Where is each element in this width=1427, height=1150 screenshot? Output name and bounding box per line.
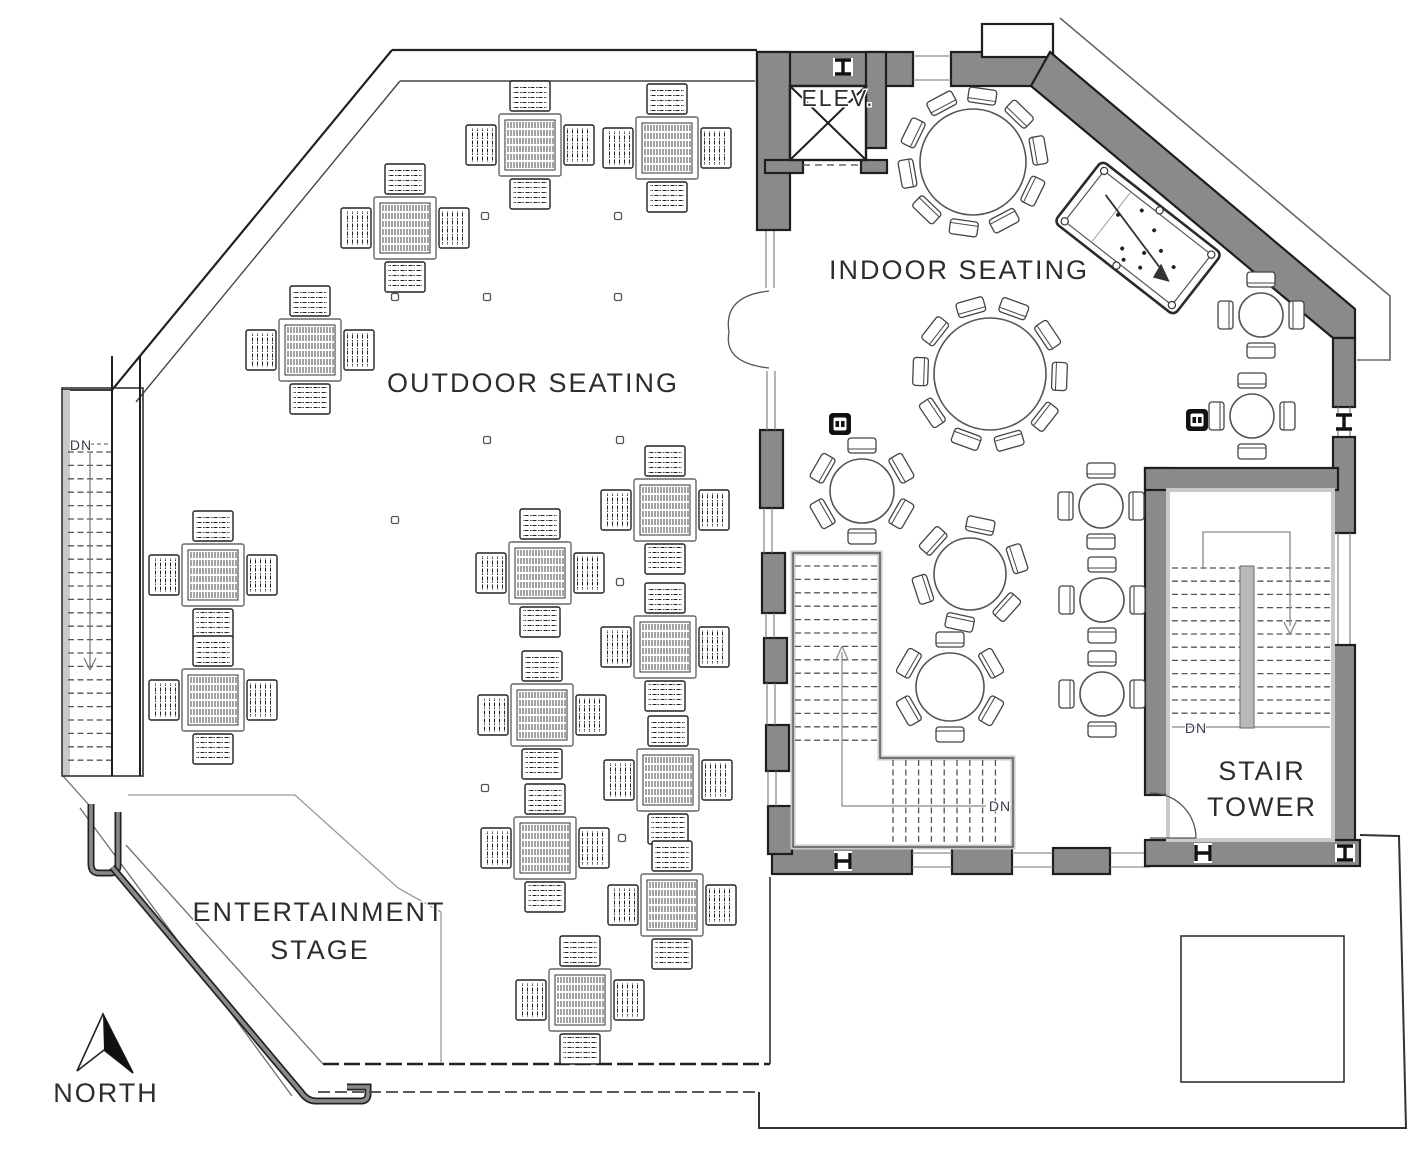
deck-dot bbox=[392, 294, 399, 301]
chair-icon bbox=[1059, 680, 1074, 708]
stair-tower-label-line2: TOWER bbox=[1207, 792, 1317, 822]
interior-stair-dn-label: DN bbox=[989, 798, 1011, 814]
left-stair: DN bbox=[62, 356, 143, 776]
chair-icon bbox=[965, 515, 996, 535]
chair-icon bbox=[1130, 680, 1145, 708]
outdoor-table bbox=[608, 841, 736, 969]
chair-icon bbox=[1051, 362, 1067, 391]
floor-plan-svg: DN ENTERTAINMENT STAGE bbox=[0, 0, 1427, 1150]
double-entry-door bbox=[728, 291, 769, 368]
round-table bbox=[898, 87, 1049, 237]
deck-dot bbox=[615, 294, 622, 301]
chair-icon bbox=[1088, 651, 1116, 666]
outdoor-table bbox=[516, 936, 644, 1064]
stair-tower: DN STAIR TOWER bbox=[1145, 468, 1360, 866]
outdoor-table bbox=[601, 583, 729, 711]
elevator-label: ELEV. bbox=[801, 85, 874, 111]
steel-column-icon bbox=[834, 851, 852, 871]
chair-icon bbox=[848, 438, 876, 453]
deck-dot bbox=[615, 213, 622, 220]
north-label: NORTH bbox=[53, 1078, 159, 1108]
outdoor-table bbox=[604, 716, 732, 844]
column-marker-icon bbox=[829, 413, 851, 435]
chair-icon bbox=[1247, 272, 1275, 287]
deck-dot bbox=[482, 213, 489, 220]
north-arrow: NORTH bbox=[53, 1014, 159, 1108]
chair-icon bbox=[848, 529, 876, 544]
chair-icon bbox=[1247, 343, 1275, 358]
deck-dot bbox=[617, 437, 624, 444]
round-table bbox=[1059, 557, 1145, 643]
entertainment-stage-label-line1: ENTERTAINMENT bbox=[192, 897, 445, 927]
deck-dot bbox=[482, 785, 489, 792]
entertainment-stage-label-line2: STAGE bbox=[270, 935, 370, 965]
chair-icon bbox=[1130, 586, 1145, 614]
steel-column-icon bbox=[1194, 843, 1212, 863]
outdoor-table bbox=[603, 84, 731, 212]
outdoor-table bbox=[476, 509, 604, 637]
chair-icon bbox=[1289, 301, 1304, 329]
chair-icon bbox=[1059, 586, 1074, 614]
chair-icon bbox=[898, 158, 918, 188]
chair-icon bbox=[1129, 492, 1144, 520]
round-table bbox=[1059, 651, 1145, 737]
stair-tower-dn-label: DN bbox=[1185, 720, 1207, 736]
indoor-seating-label: INDOOR SEATING bbox=[829, 255, 1089, 285]
deck-dots bbox=[392, 213, 626, 842]
chair-icon bbox=[1238, 373, 1266, 388]
round-table bbox=[895, 632, 1004, 742]
steel-column-icon bbox=[1334, 413, 1354, 431]
steel-column-icon bbox=[833, 58, 853, 76]
outdoor-table bbox=[481, 784, 609, 912]
chair-icon bbox=[1087, 463, 1115, 478]
chair-icon bbox=[994, 430, 1025, 452]
round-table bbox=[911, 515, 1028, 632]
chair-icon bbox=[1218, 301, 1233, 329]
chair-icon bbox=[955, 296, 986, 318]
deck-dot bbox=[392, 517, 399, 524]
chair-icon bbox=[1087, 534, 1115, 549]
outdoor-table bbox=[341, 164, 469, 292]
round-table bbox=[913, 296, 1068, 452]
outdoor-table bbox=[149, 511, 277, 639]
round-table bbox=[1058, 463, 1144, 549]
chair-icon bbox=[1238, 444, 1266, 459]
column-marker-icon bbox=[1186, 409, 1208, 431]
round-table bbox=[1209, 373, 1295, 459]
deck-dot bbox=[484, 437, 491, 444]
outdoor-seating-label: OUTDOOR SEATING bbox=[387, 368, 679, 398]
indoor-tables bbox=[809, 87, 1304, 742]
chair-icon bbox=[1029, 135, 1049, 165]
chair-icon bbox=[913, 357, 929, 386]
outdoor-table bbox=[246, 286, 374, 414]
chair-icon bbox=[949, 218, 979, 237]
chair-icon bbox=[1058, 492, 1073, 520]
chair-icon bbox=[936, 632, 964, 647]
outdoor-table bbox=[601, 446, 729, 574]
outdoor-table bbox=[478, 651, 606, 779]
round-table bbox=[809, 438, 915, 544]
chair-icon bbox=[1280, 402, 1295, 430]
chair-icon bbox=[944, 612, 975, 632]
chair-icon bbox=[1088, 557, 1116, 572]
left-stair-dn-label: DN bbox=[70, 437, 92, 453]
chair-icon bbox=[967, 87, 997, 106]
outdoor-table bbox=[466, 81, 594, 209]
chair-icon bbox=[1209, 402, 1224, 430]
floor-plan-page: { "labels": { "outdoor_seating": "OUTDOO… bbox=[0, 0, 1427, 1150]
terrace-skylight bbox=[1181, 936, 1344, 1082]
deck-dot bbox=[619, 835, 626, 842]
stair-tower-label-line1: STAIR bbox=[1218, 756, 1306, 786]
chair-icon bbox=[1088, 628, 1116, 643]
steel-column-icon bbox=[1335, 844, 1355, 862]
roof-notch bbox=[982, 24, 1053, 57]
outdoor-table bbox=[149, 636, 277, 764]
deck-dot bbox=[484, 294, 491, 301]
lower-terrace bbox=[318, 835, 1406, 1128]
chair-icon bbox=[936, 727, 964, 742]
chair-icon bbox=[1088, 722, 1116, 737]
deck-dot bbox=[617, 579, 624, 586]
